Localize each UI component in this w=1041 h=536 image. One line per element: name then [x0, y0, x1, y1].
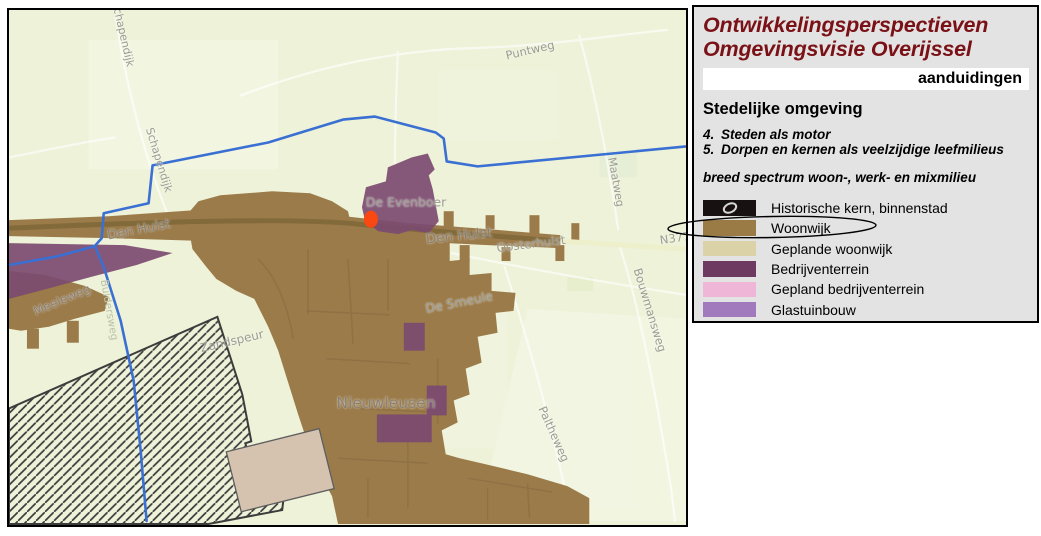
item-label: Steden als motor: [721, 127, 831, 142]
numbered-item-5: 5. Dorpen en kernen als veelzijdige leef…: [703, 142, 1029, 157]
gepland-bedrijventerrein-swatch: [703, 282, 756, 298]
legend-title-line1: Ontwikkelingsperspectieven: [703, 13, 1029, 37]
location-marker: [364, 211, 378, 228]
legend-item-label: Woonwijk: [771, 221, 831, 235]
item-number: 4.: [703, 127, 721, 142]
legend-item-label: Gepland bedrijventerrein: [771, 282, 924, 296]
legend-item-label: Geplande woonwijk: [771, 242, 892, 256]
scribble-ellipse-icon: [719, 201, 741, 215]
numbered-item-4: 4. Steden als motor: [703, 127, 1029, 142]
legend-item-historische-kern: Historische kern, binnenstad: [703, 198, 1029, 218]
legend-title: Ontwikkelingsperspectieven Omgevingsvisi…: [703, 13, 1029, 62]
bedrijventerrein-swatch: [703, 261, 756, 277]
map-canvas[interactable]: Schapendijk Schapendijk Puntweg Maatweg …: [7, 8, 688, 527]
historische-kern-swatch: [703, 200, 756, 216]
legend-subheading: breed spectrum woon-, werk- en mixmilieu: [703, 170, 1029, 185]
legend-item-woonwijk: Woonwijk: [703, 218, 1029, 238]
legend-item-geplande-woonwijk: Geplande woonwijk: [703, 238, 1029, 258]
geplande-woonwijk-swatch: [703, 241, 756, 257]
legend-item-glastuinbouw: Glastuinbouw: [703, 300, 1029, 320]
glastuinbouw-swatch: [703, 302, 756, 318]
item-number: 5.: [703, 142, 721, 157]
legend-item-label: Glastuinbouw: [771, 303, 856, 317]
legend-item-gepland-bedrijventerrein: Gepland bedrijventerrein: [703, 279, 1029, 299]
legend-numbered-items: 4. Steden als motor 5. Dorpen en kernen …: [703, 127, 1029, 157]
item-label: Dorpen en kernen als veelzijdige leefmil…: [721, 142, 1004, 157]
legend-item-bedrijventerrein: Bedrijventerrein: [703, 259, 1029, 279]
woonwijk-swatch: [703, 220, 756, 236]
screenshot-root: Schapendijk Schapendijk Puntweg Maatweg …: [0, 0, 1041, 536]
legend-section-heading: Stedelijke omgeving: [703, 100, 1029, 119]
legend-item-label: Bedrijventerrein: [771, 262, 869, 276]
map-drawing: [9, 10, 686, 525]
legend-title-line2: Omgevingsvisie Overijssel: [703, 37, 1029, 61]
legend-panel: Ontwikkelingsperspectieven Omgevingsvisi…: [692, 5, 1039, 323]
legend-items: Historische kern, binnenstad Woonwijk Ge…: [703, 198, 1029, 320]
aanduidingen-bar: aanduidingen: [703, 68, 1029, 90]
legend-item-label: Historische kern, binnenstad: [771, 201, 948, 215]
